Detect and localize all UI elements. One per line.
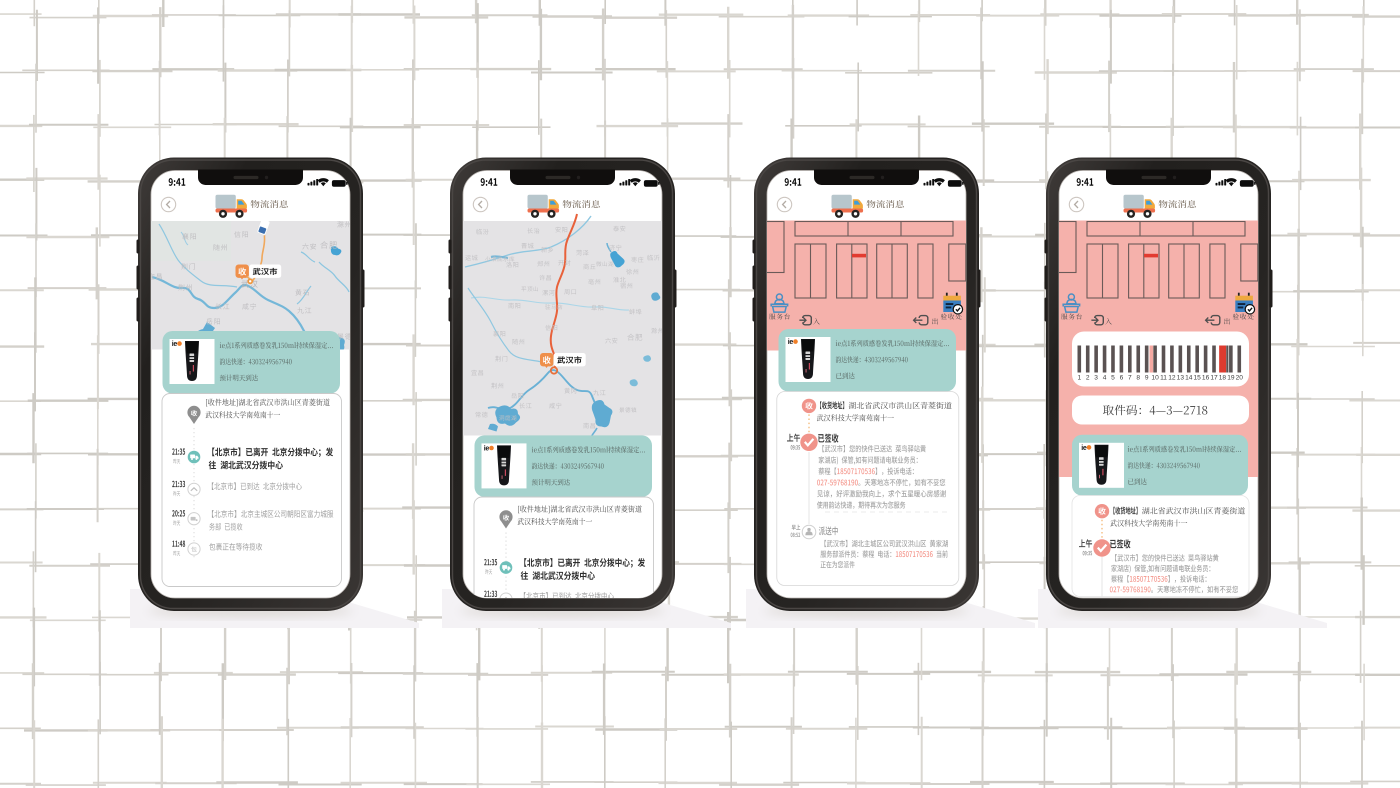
svg-text:17: 17 <box>1210 375 1218 382</box>
svg-text:19: 19 <box>1227 375 1235 382</box>
svg-text:16: 16 <box>1202 375 1210 382</box>
svg-text:8: 8 <box>1136 375 1140 382</box>
svg-text:ie: ie <box>484 446 490 453</box>
svg-text:2: 2 <box>1086 375 1090 382</box>
svg-text:ie: ie <box>172 341 178 348</box>
svg-text:7: 7 <box>1128 375 1132 382</box>
svg-text:1: 1 <box>1077 375 1081 382</box>
svg-text:ie: ie <box>1081 445 1087 452</box>
svg-text:13: 13 <box>1177 375 1185 382</box>
svg-text:18: 18 <box>1219 375 1227 382</box>
svg-text:4: 4 <box>1103 375 1107 382</box>
svg-text:9: 9 <box>1145 375 1149 382</box>
svg-text:12: 12 <box>1168 375 1176 382</box>
svg-text:3: 3 <box>1094 375 1098 382</box>
svg-text:6: 6 <box>1120 375 1124 382</box>
svg-text:14: 14 <box>1185 375 1193 382</box>
svg-text:11: 11 <box>1160 375 1167 382</box>
svg-text:5: 5 <box>1111 375 1115 382</box>
svg-text:20: 20 <box>1236 375 1244 382</box>
svg-text:ie: ie <box>788 339 794 346</box>
svg-text:15: 15 <box>1194 375 1202 382</box>
svg-text:10: 10 <box>1151 375 1159 382</box>
